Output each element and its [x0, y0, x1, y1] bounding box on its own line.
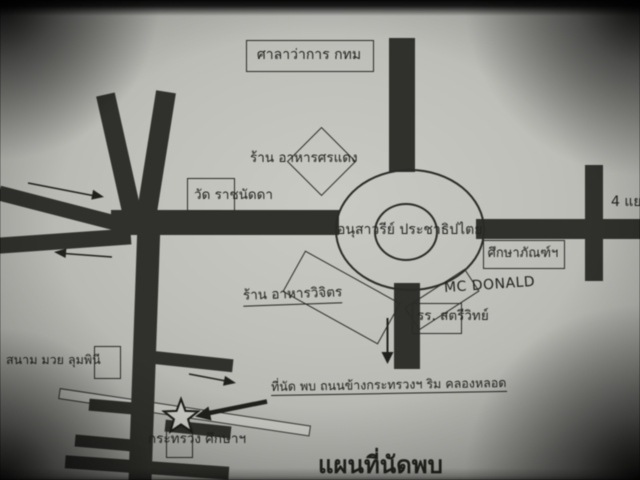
road-horizontal-east	[476, 219, 640, 239]
label-satri-school: รร. สตรีวิทย์	[417, 309, 489, 325]
side-street-left-2	[75, 435, 133, 452]
arrow-southeast-icon	[189, 374, 236, 386]
road-diagonal-west-upper	[0, 186, 129, 234]
road-diagonal-west-lower	[0, 228, 131, 253]
label-four-way-junction: 4 แยก	[611, 194, 640, 210]
arrow-west-icon	[54, 249, 112, 259]
label-city-hall: ศาลาว่าการ กทม	[246, 40, 372, 70]
label-boxing-stadium: สนาม มวย ลุมพินี	[6, 353, 101, 367]
side-street-right-1	[151, 351, 234, 373]
label-meeting-point: ที่นัด พบ ถนนข้างกระทรวงฯ ริม คลองหลอด	[271, 376, 507, 396]
road-diagonal-north-b	[136, 90, 176, 220]
label-restaurant-sorndaeng: ร้าน อาหารศรแดง	[250, 151, 358, 167]
map-title: แผนที่นัดพบ	[312, 445, 449, 480]
road-diagonal-north-a	[96, 92, 143, 222]
label-democracy-monument: อนุสาวรีย์ ประชาธิปไตย	[337, 222, 481, 238]
road-east-cross	[585, 165, 603, 281]
road-north	[389, 38, 415, 172]
label-wat-ratchanadda: วัด ราชนัดดา	[194, 188, 273, 204]
meeting-map-photo: ศาลาว่าการ กทม ร้าน อาหารศรแดง วัด ราชนั…	[0, 0, 640, 480]
label-ministry-education: กระทรวง ศึกษาฯ	[148, 432, 246, 448]
label-restaurant-vijit: ร้าน อาหารวิจิตร	[243, 285, 343, 306]
label-suksapan: ศึกษาภัณฑ์ฯ	[483, 240, 563, 267]
